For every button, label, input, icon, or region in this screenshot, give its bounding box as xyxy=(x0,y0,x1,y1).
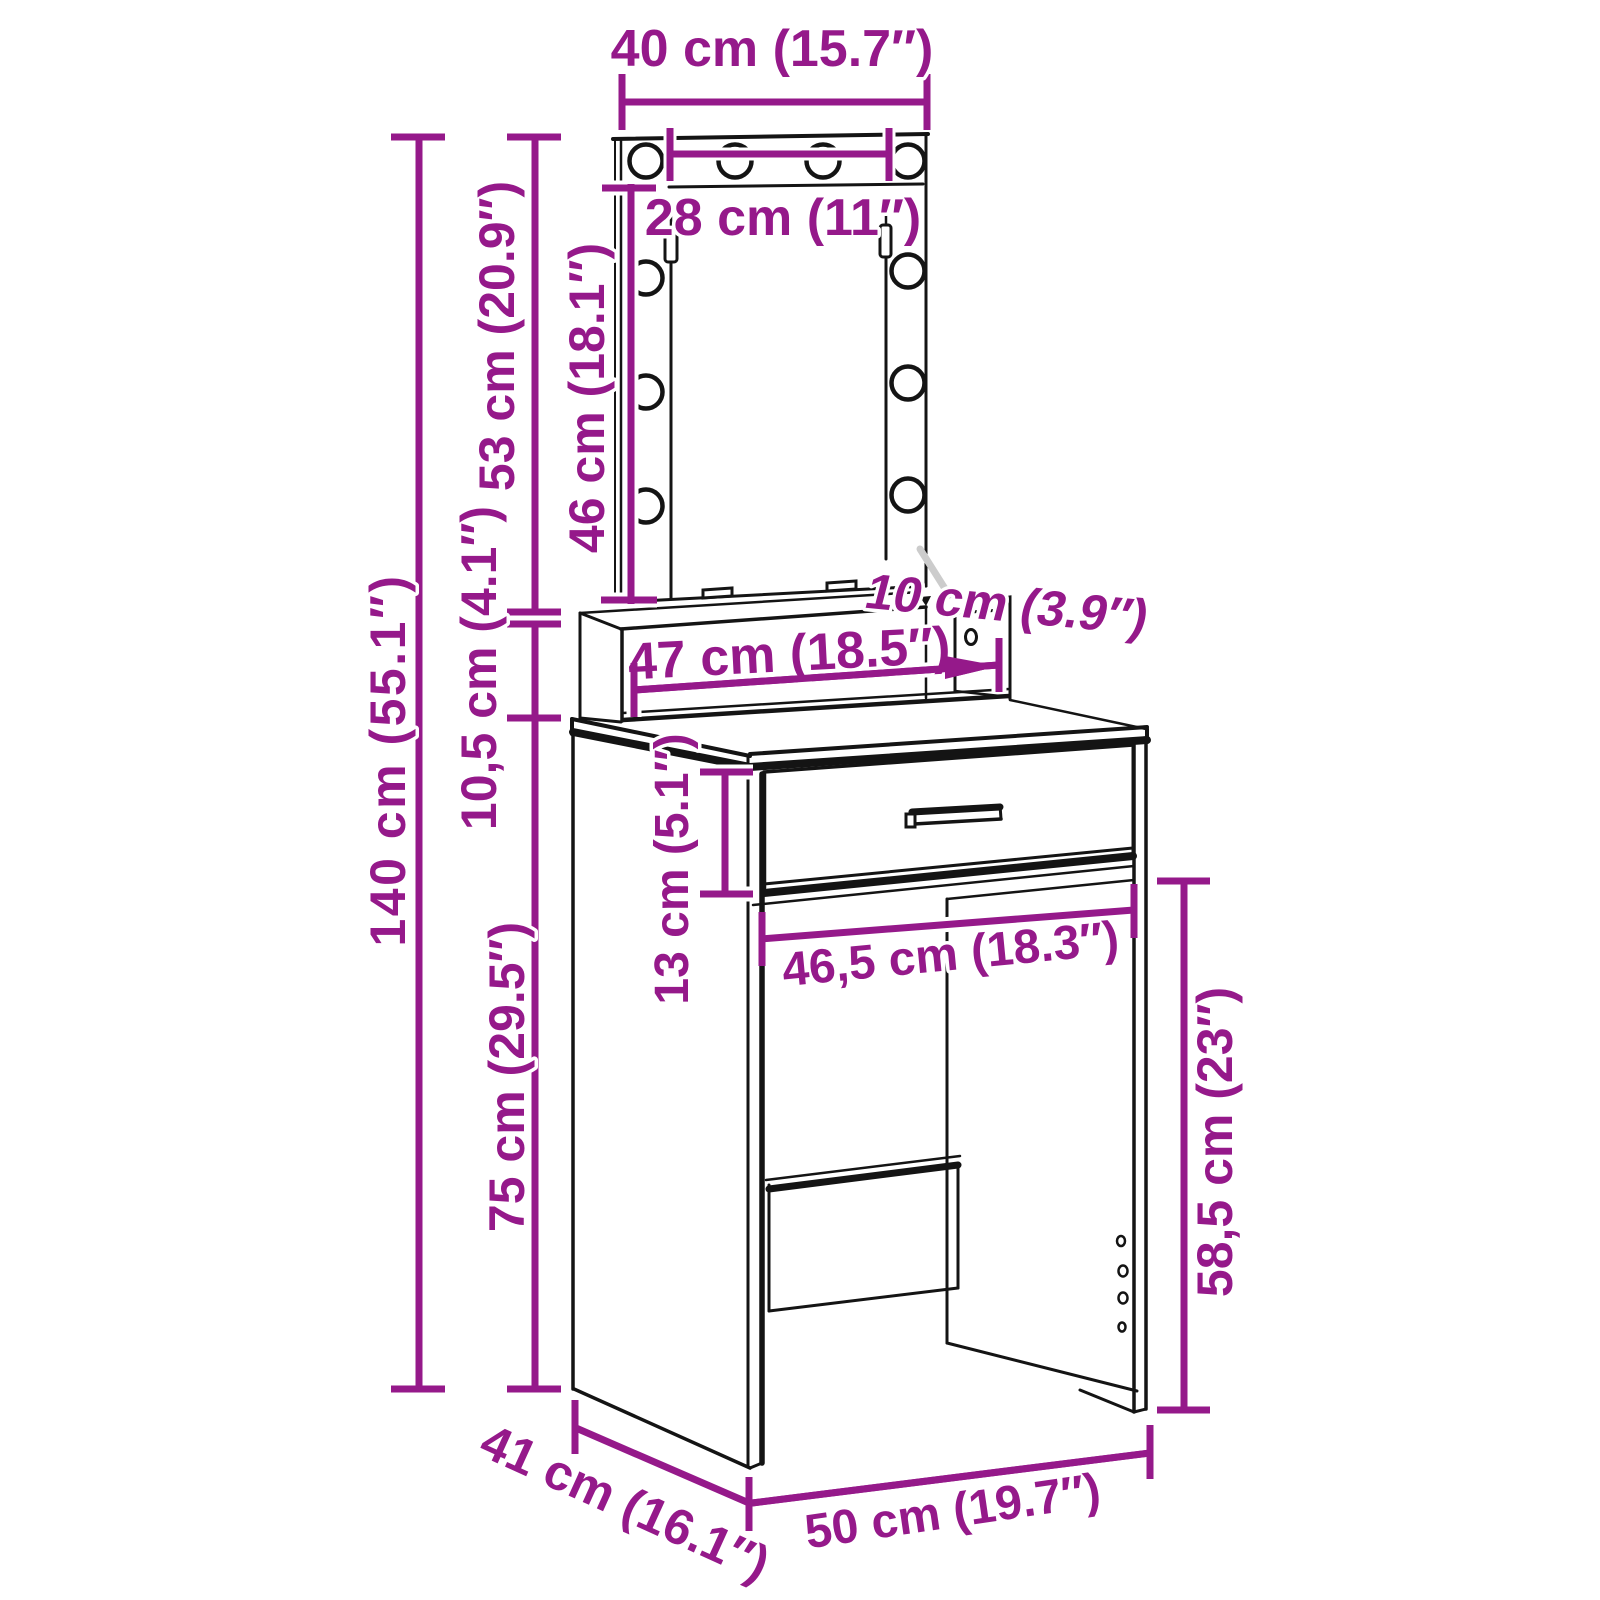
svg-text:10,5 cm (4.1″): 10,5 cm (4.1″) xyxy=(451,506,507,830)
svg-text:53 cm (20.9″): 53 cm (20.9″) xyxy=(469,181,525,491)
svg-text:40 cm (15.7″): 40 cm (15.7″) xyxy=(611,20,934,78)
svg-text:140 cm (55.1″): 140 cm (55.1″) xyxy=(360,573,416,946)
svg-text:13 cm (5.1″): 13 cm (5.1″) xyxy=(646,733,699,1004)
svg-text:46 cm (18.1″): 46 cm (18.1″) xyxy=(559,243,615,553)
svg-text:28 cm (11″): 28 cm (11″) xyxy=(645,189,921,247)
svg-text:58,5 cm (23″): 58,5 cm (23″) xyxy=(1187,987,1243,1297)
svg-text:75 cm (29.5″): 75 cm (29.5″) xyxy=(479,922,535,1232)
